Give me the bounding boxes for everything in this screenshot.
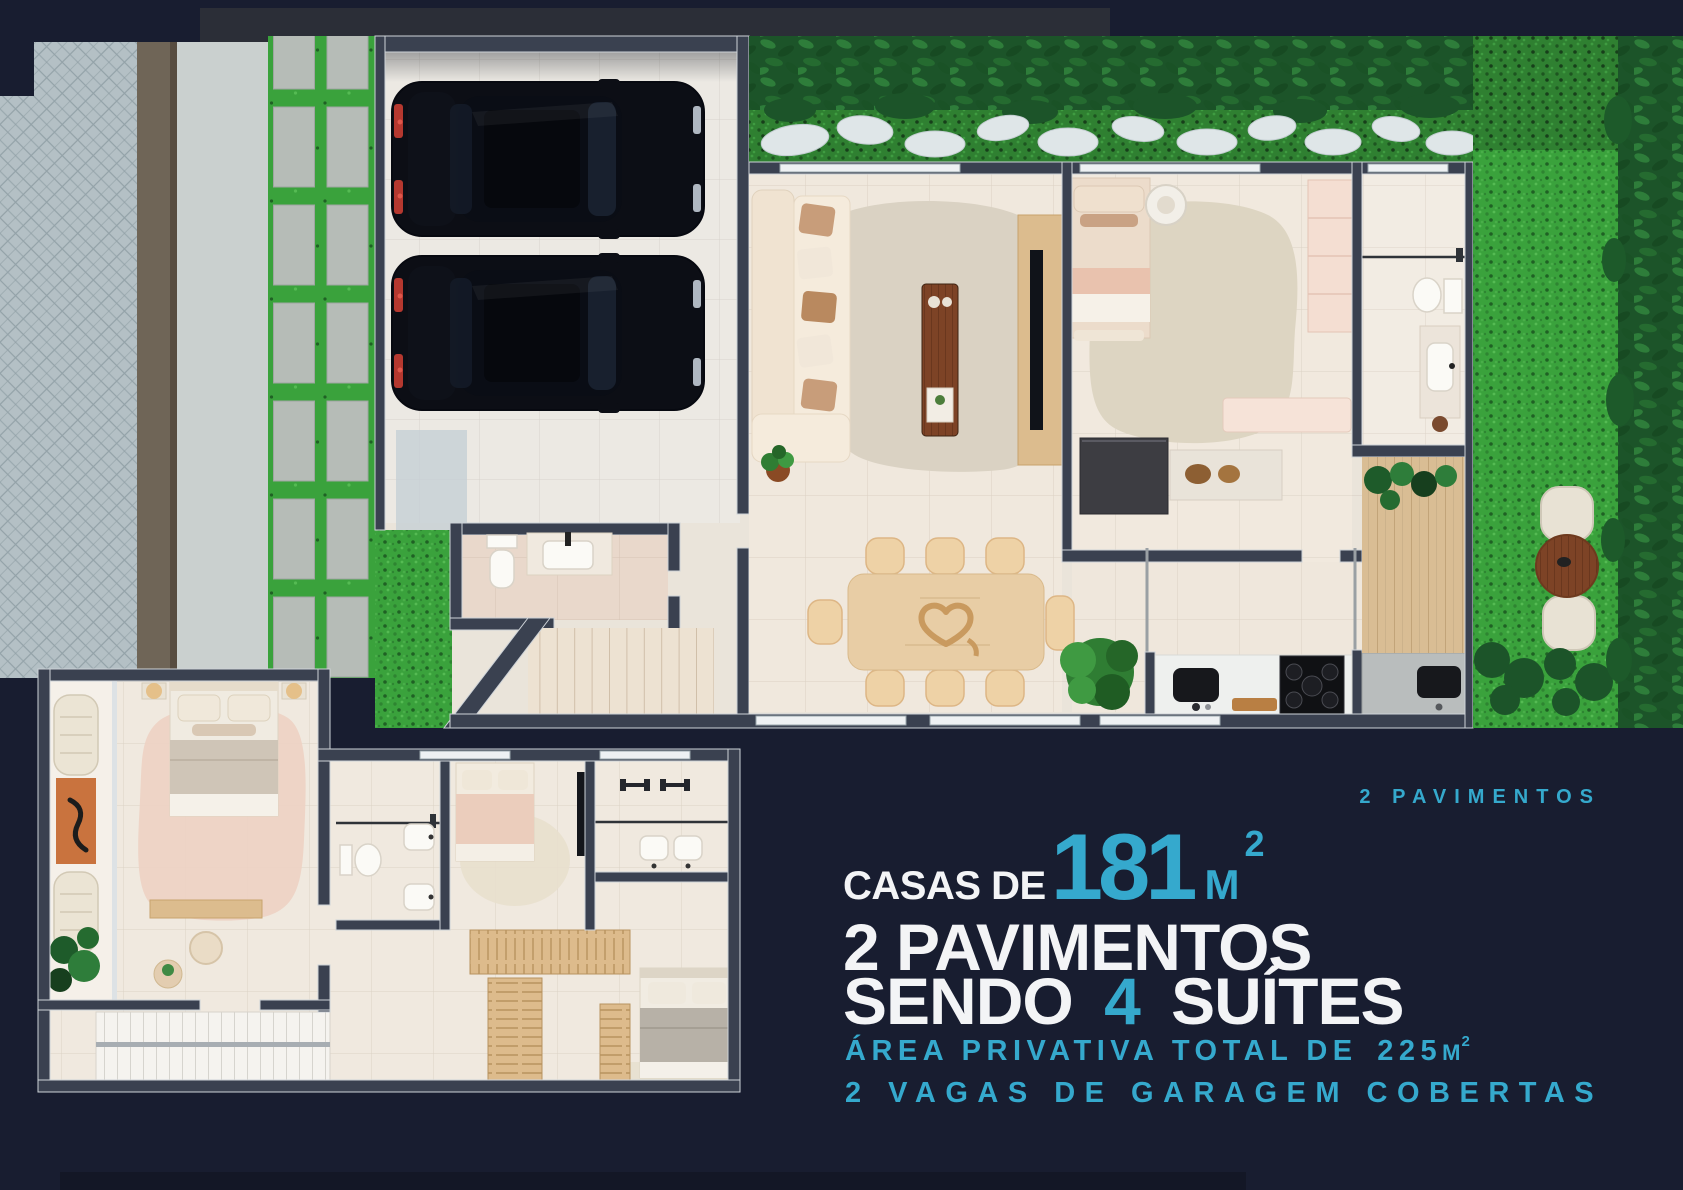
- grass-paver-strip: [268, 36, 375, 678]
- floors-tag: 2 PAVIMENTOS: [1359, 786, 1601, 809]
- chair: [190, 932, 222, 964]
- toilet-tank: [487, 535, 517, 548]
- garden-seating: [1536, 487, 1598, 650]
- faucet: [565, 532, 571, 546]
- sink-1: [640, 836, 668, 860]
- car-2: [392, 253, 704, 413]
- headline-suites: SENDO 4 SUÍTES: [843, 968, 1404, 1034]
- side-garden: [1473, 36, 1683, 728]
- private-area-exponent: 2: [1461, 1033, 1475, 1050]
- toilet: [1413, 278, 1441, 312]
- private-area-label: ÁREA PRIVATIVA TOTAL DE: [845, 1035, 1358, 1067]
- toilet: [355, 844, 381, 876]
- tv: [1030, 250, 1043, 430]
- area-value: 181: [1051, 820, 1193, 914]
- plant: [1432, 416, 1448, 432]
- area-exponent: 2: [1245, 826, 1265, 862]
- gourmet-deck: [1362, 457, 1465, 653]
- upper-floor-plan: [38, 669, 740, 1092]
- toilet: [490, 550, 514, 588]
- car-1: [392, 79, 704, 239]
- sink: [1427, 343, 1453, 391]
- lounger-1: [54, 695, 98, 775]
- desk: [150, 900, 262, 918]
- suites-prefix: SENDO: [843, 964, 1073, 1038]
- powder-room: [450, 523, 680, 630]
- wardrobe: [600, 1004, 630, 1080]
- sink-2: [674, 836, 702, 860]
- dining-table: [848, 574, 1044, 670]
- balcony: [48, 681, 117, 1000]
- bed: [1068, 178, 1150, 341]
- cutting-board: [1232, 698, 1277, 711]
- staircase-upper: [96, 1012, 330, 1080]
- garage: [375, 52, 740, 530]
- living-room: [752, 190, 1062, 482]
- gourmet-sink: [1417, 666, 1461, 698]
- flyer: 2 PAVIMENTOS CASAS DE 181 M 2 2 PAVIMENT…: [0, 0, 1683, 1190]
- balcony-rug: [56, 778, 96, 864]
- tv-console: [1018, 215, 1062, 465]
- coffee-table: [922, 284, 958, 436]
- indoor-tree: [1060, 638, 1138, 710]
- dresser: [1223, 398, 1351, 432]
- kitchen-island: [1080, 438, 1168, 514]
- toilet-tank: [1444, 279, 1462, 313]
- glass-wall: [112, 681, 117, 1000]
- side-lawn: [375, 530, 452, 728]
- sidewalk: [177, 42, 268, 678]
- private-area-unit: M: [1442, 1040, 1461, 1065]
- cooktop: [1280, 656, 1344, 714]
- suites-value: 4: [1104, 964, 1140, 1038]
- headline-area: CASAS DE 181 M 2: [843, 820, 1265, 914]
- headline-prefix: CASAS DE: [843, 866, 1046, 906]
- floor-plans-illustration: [0, 0, 1683, 1190]
- private-area-line: ÁREA PRIVATIVA TOTAL DE 225M2: [845, 1034, 1475, 1066]
- suite-bedroom: [1068, 178, 1352, 443]
- ground-floor-plan: [0, 8, 1683, 728]
- footer-shadow: [60, 1172, 1246, 1190]
- sofa: [752, 190, 850, 462]
- tv: [577, 772, 585, 856]
- area-unit: M: [1205, 864, 1240, 906]
- kitchen-sink: [1173, 668, 1219, 702]
- master-bed: [170, 681, 278, 816]
- private-area-value: 225: [1377, 1035, 1442, 1067]
- street-paving: [0, 30, 375, 678]
- garage-line: 2 VAGAS DE GARAGEM COBERTAS: [845, 1079, 1603, 1108]
- suites-suffix: SUÍTES: [1171, 964, 1403, 1038]
